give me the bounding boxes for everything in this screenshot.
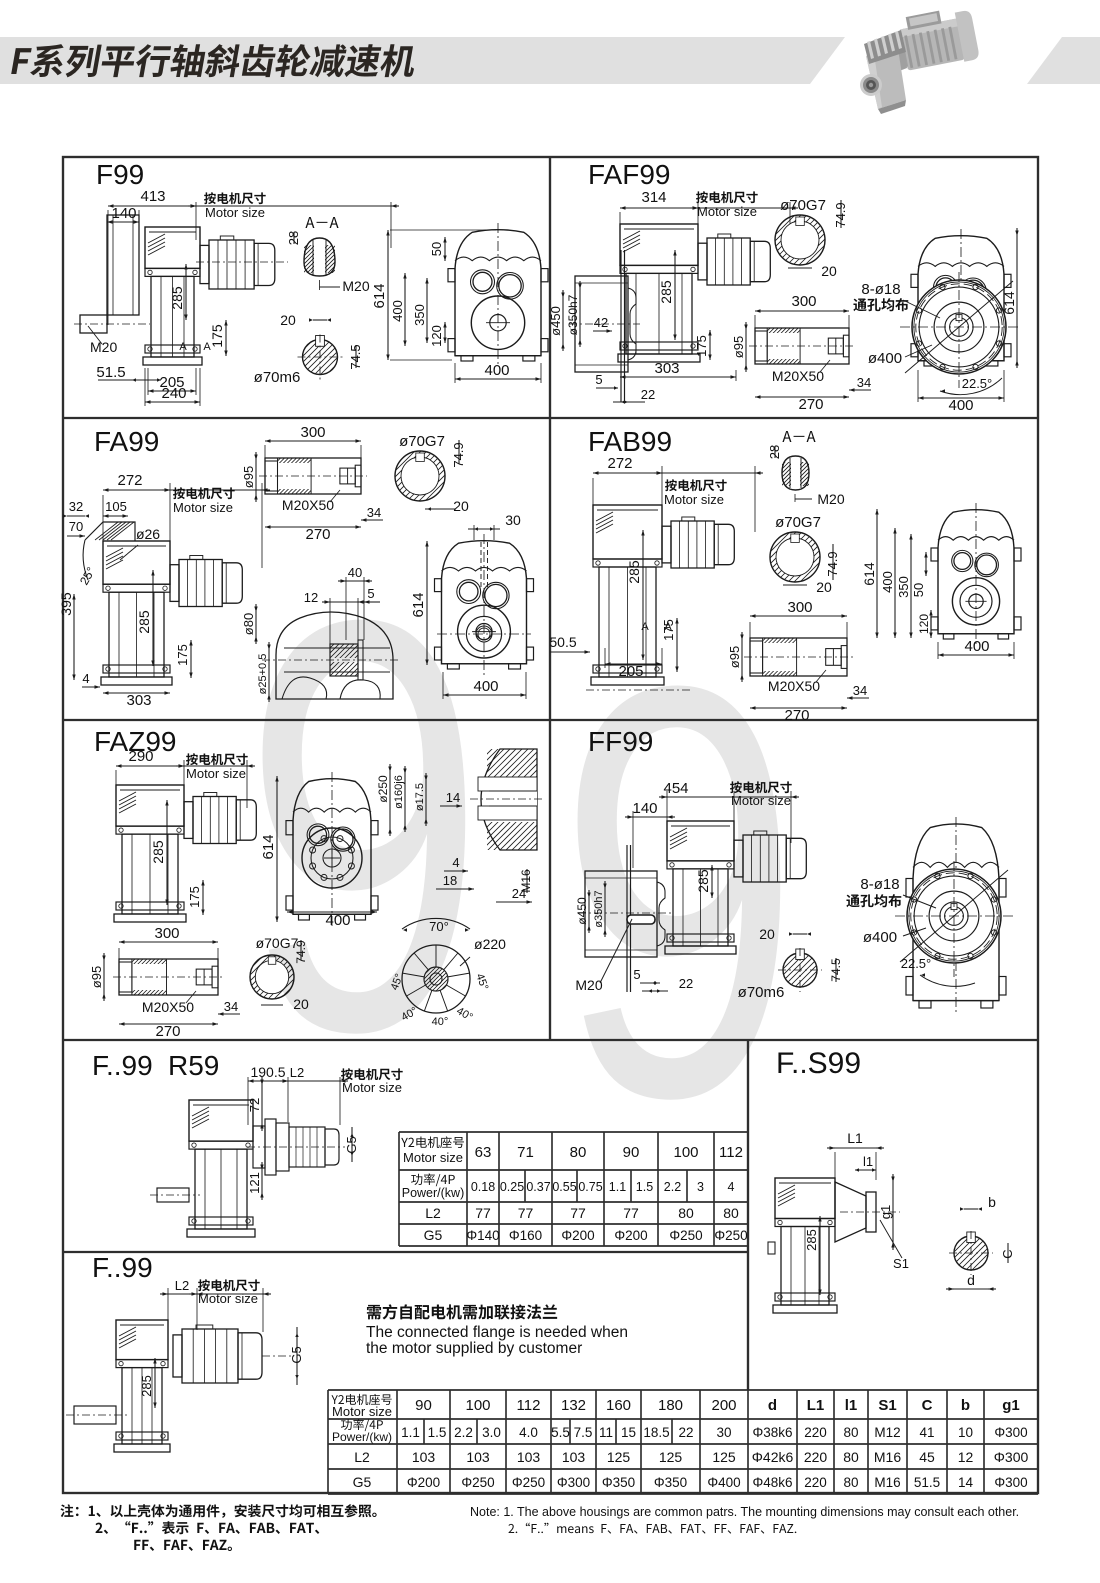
svg-text:Φ42k6: Φ42k6 xyxy=(752,1449,794,1465)
svg-text:41: 41 xyxy=(919,1425,934,1440)
svg-text:4: 4 xyxy=(82,671,89,686)
svg-text:20: 20 xyxy=(280,312,296,328)
svg-text:22.5°: 22.5° xyxy=(962,376,993,391)
svg-text:103: 103 xyxy=(412,1449,436,1465)
svg-text:400: 400 xyxy=(473,678,498,695)
svg-text:34: 34 xyxy=(857,375,871,390)
svg-text:L1: L1 xyxy=(807,1397,825,1414)
svg-text:28: 28 xyxy=(286,231,301,245)
svg-text:20: 20 xyxy=(759,926,775,942)
svg-text:4.0: 4.0 xyxy=(519,1425,538,1440)
svg-text:272: 272 xyxy=(607,455,632,472)
svg-text:80: 80 xyxy=(843,1449,859,1465)
svg-text:Motor size: Motor size xyxy=(697,204,757,219)
svg-text:The connected flange is needed: The connected flange is needed when xyxy=(366,1324,628,1341)
svg-text:4: 4 xyxy=(728,1180,735,1194)
svg-text:240: 240 xyxy=(161,385,186,402)
svg-text:270: 270 xyxy=(784,707,809,724)
svg-text:5: 5 xyxy=(633,967,640,982)
svg-text:140: 140 xyxy=(111,205,136,222)
svg-text:1.5: 1.5 xyxy=(636,1180,653,1194)
svg-text:285: 285 xyxy=(658,280,674,304)
svg-text:A: A xyxy=(641,621,649,633)
svg-text:77: 77 xyxy=(518,1205,534,1221)
svg-text:1.5: 1.5 xyxy=(428,1425,447,1440)
svg-text:Φ250: Φ250 xyxy=(669,1228,702,1243)
svg-text:S1: S1 xyxy=(893,1256,909,1271)
svg-text:M20: M20 xyxy=(342,278,369,294)
svg-text:125: 125 xyxy=(607,1449,631,1465)
svg-text:d: d xyxy=(768,1397,777,1414)
svg-text:ø250: ø250 xyxy=(376,775,390,803)
svg-text:20: 20 xyxy=(453,498,469,514)
svg-text:45: 45 xyxy=(919,1449,935,1465)
svg-text:L2: L2 xyxy=(425,1205,441,1221)
svg-text:0.37: 0.37 xyxy=(526,1180,550,1194)
svg-text:0.18: 0.18 xyxy=(471,1180,495,1194)
svg-text:ø220: ø220 xyxy=(474,936,506,952)
svg-text:Φ250: Φ250 xyxy=(512,1475,545,1490)
svg-text:g1: g1 xyxy=(1002,1397,1020,1414)
svg-text:220: 220 xyxy=(804,1425,827,1440)
svg-text:140: 140 xyxy=(632,800,657,817)
svg-text:Motor size: Motor size xyxy=(205,205,265,220)
svg-text:190.5: 190.5 xyxy=(250,1064,285,1080)
svg-text:A: A xyxy=(664,621,672,633)
svg-text:FA99: FA99 xyxy=(94,426,159,457)
svg-text:M20X50: M20X50 xyxy=(282,497,334,513)
svg-text:Φ200: Φ200 xyxy=(407,1475,440,1490)
svg-text:2.2: 2.2 xyxy=(454,1425,473,1440)
svg-text:11: 11 xyxy=(599,1425,613,1440)
svg-text:0.55: 0.55 xyxy=(552,1180,576,1194)
svg-text:8-ø18: 8-ø18 xyxy=(861,281,900,298)
svg-text:42: 42 xyxy=(594,315,608,330)
svg-text:74.9: 74.9 xyxy=(825,551,840,576)
svg-text:74.9: 74.9 xyxy=(294,940,308,964)
svg-text:14: 14 xyxy=(446,790,460,805)
svg-text:ø400: ø400 xyxy=(863,929,897,946)
svg-text:30: 30 xyxy=(716,1425,731,1440)
svg-text:ø450: ø450 xyxy=(575,897,589,925)
svg-text:285: 285 xyxy=(150,840,166,864)
svg-text:285: 285 xyxy=(804,1229,819,1251)
svg-text:50: 50 xyxy=(911,583,926,597)
svg-text:74.9: 74.9 xyxy=(833,202,848,227)
svg-text:12: 12 xyxy=(958,1449,974,1465)
svg-text:270: 270 xyxy=(305,526,330,543)
svg-text:Motor size: Motor size xyxy=(173,500,233,515)
svg-text:30: 30 xyxy=(505,512,521,528)
svg-text:74.5: 74.5 xyxy=(829,958,843,982)
svg-text:103: 103 xyxy=(517,1449,541,1465)
svg-text:175: 175 xyxy=(694,335,709,357)
svg-text:175: 175 xyxy=(187,886,202,908)
svg-text:Φ300: Φ300 xyxy=(994,1449,1029,1465)
svg-text:121: 121 xyxy=(247,1172,262,1194)
svg-text:400: 400 xyxy=(880,571,895,593)
svg-text:614: 614 xyxy=(260,834,277,859)
svg-text:M16: M16 xyxy=(874,1449,901,1465)
svg-text:Φ200: Φ200 xyxy=(561,1228,594,1243)
svg-text:M20: M20 xyxy=(817,491,844,507)
svg-text:15: 15 xyxy=(621,1425,636,1440)
svg-text:300: 300 xyxy=(787,599,812,616)
svg-text:270: 270 xyxy=(798,396,823,413)
svg-text:Φ250: Φ250 xyxy=(714,1228,747,1243)
svg-text:285: 285 xyxy=(169,286,185,310)
svg-text:Φ350: Φ350 xyxy=(602,1475,635,1490)
svg-text:L1: L1 xyxy=(847,1130,863,1146)
svg-text:175: 175 xyxy=(175,644,190,666)
svg-text:10: 10 xyxy=(958,1425,973,1440)
svg-text:22: 22 xyxy=(679,976,693,991)
svg-text:Φ48k6: Φ48k6 xyxy=(752,1475,792,1490)
svg-text:24: 24 xyxy=(512,886,526,901)
svg-text:300: 300 xyxy=(791,293,816,310)
svg-text:ø95: ø95 xyxy=(241,466,256,488)
svg-text:ø26: ø26 xyxy=(136,526,160,542)
svg-text:M16: M16 xyxy=(874,1475,900,1490)
svg-text:b: b xyxy=(961,1397,970,1414)
svg-text:22: 22 xyxy=(678,1425,693,1440)
svg-text:A: A xyxy=(179,341,187,353)
svg-text:103: 103 xyxy=(466,1449,490,1465)
svg-text:the motor supplied by customer: the motor supplied by customer xyxy=(366,1340,582,1357)
svg-text:100: 100 xyxy=(465,1397,490,1414)
svg-text:Φ38k6: Φ38k6 xyxy=(752,1425,792,1440)
svg-text:2.2: 2.2 xyxy=(664,1180,681,1194)
svg-text:180: 180 xyxy=(658,1397,683,1414)
svg-text:L2: L2 xyxy=(175,1278,189,1293)
svg-text:175: 175 xyxy=(209,324,225,348)
svg-text:ø400: ø400 xyxy=(868,350,902,367)
svg-text:4: 4 xyxy=(452,855,459,870)
svg-text:395: 395 xyxy=(58,592,74,616)
svg-text:d: d xyxy=(967,1272,975,1288)
svg-text:285: 285 xyxy=(136,610,152,634)
svg-text:Φ160: Φ160 xyxy=(509,1228,542,1243)
svg-text:80: 80 xyxy=(843,1425,858,1440)
svg-text:Φ250: Φ250 xyxy=(461,1475,494,1490)
svg-text:220: 220 xyxy=(804,1449,828,1465)
svg-text:300: 300 xyxy=(300,424,325,441)
svg-text:105: 105 xyxy=(105,499,127,514)
svg-text:303: 303 xyxy=(126,692,151,709)
svg-text:G5: G5 xyxy=(353,1474,372,1490)
svg-text:70°: 70° xyxy=(429,919,449,934)
svg-text:205: 205 xyxy=(618,663,643,680)
svg-text:Φ300: Φ300 xyxy=(994,1475,1027,1490)
svg-text:32: 32 xyxy=(69,499,83,514)
svg-text:112: 112 xyxy=(719,1144,743,1161)
svg-text:FAF99: FAF99 xyxy=(588,159,670,190)
svg-text:5.5: 5.5 xyxy=(551,1425,570,1440)
svg-text:Motor size: Motor size xyxy=(731,793,791,808)
svg-text:g1: g1 xyxy=(878,1205,893,1219)
svg-text:614: 614 xyxy=(410,592,427,617)
svg-text:22: 22 xyxy=(641,387,655,402)
svg-text:R59: R59 xyxy=(168,1050,219,1081)
svg-text:80: 80 xyxy=(843,1475,858,1490)
svg-text:614: 614 xyxy=(861,562,877,586)
svg-text:70: 70 xyxy=(69,519,83,534)
svg-text:Motor size: Motor size xyxy=(186,766,246,781)
svg-text:M20: M20 xyxy=(575,977,602,993)
svg-text:71: 71 xyxy=(517,1144,534,1161)
svg-text:ø95: ø95 xyxy=(731,336,746,358)
svg-text:614: 614 xyxy=(1001,291,1017,315)
svg-text:ø70G7: ø70G7 xyxy=(780,197,826,214)
svg-text:M20X50: M20X50 xyxy=(142,999,194,1015)
svg-text:400: 400 xyxy=(484,362,509,379)
svg-text:125: 125 xyxy=(712,1449,736,1465)
svg-text:50.5: 50.5 xyxy=(549,634,576,650)
svg-text:80: 80 xyxy=(570,1144,587,1161)
svg-text:400: 400 xyxy=(964,638,989,655)
svg-text:l1: l1 xyxy=(863,1154,873,1169)
svg-text:132: 132 xyxy=(561,1397,586,1414)
svg-text:40°: 40° xyxy=(432,1016,449,1028)
svg-text:l1: l1 xyxy=(845,1397,858,1414)
svg-text:285: 285 xyxy=(139,1375,154,1397)
svg-text:Motor size: Motor size xyxy=(664,492,724,507)
svg-text:ø80: ø80 xyxy=(241,613,256,635)
svg-text:ø70m6: ø70m6 xyxy=(738,984,785,1001)
svg-text:100: 100 xyxy=(673,1144,698,1161)
svg-text:272: 272 xyxy=(117,472,142,489)
svg-text:Power/(kw): Power/(kw) xyxy=(332,1430,392,1444)
svg-text:3.0: 3.0 xyxy=(482,1425,501,1440)
svg-text:L2: L2 xyxy=(290,1065,304,1080)
svg-text:90: 90 xyxy=(415,1397,432,1414)
svg-text:M12: M12 xyxy=(874,1425,900,1440)
svg-text:614: 614 xyxy=(371,283,388,308)
svg-text:72: 72 xyxy=(247,1098,262,1112)
svg-text:M20: M20 xyxy=(90,339,117,355)
svg-text:Note: 1. The above housings a: Note: 1. The above housings are common p… xyxy=(470,1505,1019,1519)
svg-text:3: 3 xyxy=(697,1180,704,1194)
svg-text:120: 120 xyxy=(917,614,931,634)
svg-text:Φ300: Φ300 xyxy=(557,1475,590,1490)
svg-text:63: 63 xyxy=(475,1144,492,1161)
svg-text:ø95: ø95 xyxy=(89,966,104,988)
svg-text:M20X50: M20X50 xyxy=(772,368,824,384)
svg-text:77: 77 xyxy=(623,1205,639,1221)
svg-text:270: 270 xyxy=(155,1023,180,1040)
svg-text:ø70m6: ø70m6 xyxy=(254,369,301,386)
svg-text:454: 454 xyxy=(663,780,688,797)
svg-text:350: 350 xyxy=(412,304,427,326)
svg-text:ø160j6: ø160j6 xyxy=(393,775,405,809)
svg-text:F99: F99 xyxy=(96,159,144,190)
svg-text:34: 34 xyxy=(224,999,238,1014)
svg-text:20: 20 xyxy=(293,996,309,1012)
svg-text:400: 400 xyxy=(390,300,405,322)
svg-text:L2: L2 xyxy=(354,1449,370,1465)
svg-text:77: 77 xyxy=(475,1205,491,1221)
svg-text:20: 20 xyxy=(816,579,832,595)
svg-text:M20X50: M20X50 xyxy=(768,678,820,694)
svg-text:303: 303 xyxy=(654,360,679,377)
svg-text:160: 160 xyxy=(606,1397,631,1414)
svg-text:120: 120 xyxy=(429,325,444,347)
svg-text:34: 34 xyxy=(367,505,381,520)
svg-text:314: 314 xyxy=(641,189,666,206)
svg-text:220: 220 xyxy=(804,1475,827,1490)
svg-text:ø70G7: ø70G7 xyxy=(256,935,299,951)
svg-text:14: 14 xyxy=(958,1475,974,1490)
svg-text:G5: G5 xyxy=(344,1136,359,1153)
svg-text:ø25+0.5: ø25+0.5 xyxy=(257,654,269,695)
svg-text:80: 80 xyxy=(723,1205,739,1221)
svg-text:Φ140: Φ140 xyxy=(466,1228,499,1243)
svg-text:125: 125 xyxy=(659,1449,683,1465)
svg-text:0.75: 0.75 xyxy=(578,1180,602,1194)
svg-text:300: 300 xyxy=(154,925,179,942)
svg-text:Motor size: Motor size xyxy=(198,1291,258,1306)
svg-text:12: 12 xyxy=(304,590,318,605)
svg-text:ø350h7: ø350h7 xyxy=(593,890,605,927)
svg-text:F..99: F..99 xyxy=(92,1252,153,1283)
svg-text:5: 5 xyxy=(367,586,374,601)
svg-text:400: 400 xyxy=(325,912,350,929)
svg-text:77: 77 xyxy=(570,1205,586,1221)
svg-text:b: b xyxy=(988,1194,996,1210)
svg-text:285: 285 xyxy=(626,560,642,584)
svg-text:50: 50 xyxy=(429,242,444,256)
svg-text:1.1: 1.1 xyxy=(401,1425,420,1440)
svg-text:Φ300: Φ300 xyxy=(994,1425,1027,1440)
svg-text:Φ200: Φ200 xyxy=(614,1228,647,1243)
svg-text:G5: G5 xyxy=(424,1227,443,1243)
svg-text:Motor size: Motor size xyxy=(403,1150,463,1165)
svg-text:Motor size: Motor size xyxy=(332,1404,392,1419)
svg-text:400: 400 xyxy=(948,397,973,414)
svg-text:290: 290 xyxy=(128,748,153,765)
svg-text:103: 103 xyxy=(562,1449,586,1465)
svg-text:C: C xyxy=(1000,1249,1015,1258)
svg-text:ø350h7: ø350h7 xyxy=(566,294,580,335)
svg-text:G5: G5 xyxy=(289,1346,304,1363)
svg-text:90: 90 xyxy=(623,1144,640,1161)
svg-text:FAB99: FAB99 xyxy=(588,426,672,457)
svg-text:S1: S1 xyxy=(878,1397,896,1414)
svg-text:34: 34 xyxy=(853,683,867,698)
svg-text:7.5: 7.5 xyxy=(574,1425,593,1440)
svg-text:40: 40 xyxy=(348,565,362,580)
svg-text:ø450: ø450 xyxy=(548,306,563,336)
svg-text:51.5: 51.5 xyxy=(96,364,125,381)
svg-text:22.5°: 22.5° xyxy=(901,956,932,971)
svg-text:200: 200 xyxy=(711,1397,736,1414)
svg-text:Power/(kw): Power/(kw) xyxy=(402,1186,465,1200)
svg-text:5: 5 xyxy=(595,372,602,387)
svg-text:350: 350 xyxy=(896,576,911,598)
svg-text:F..99: F..99 xyxy=(92,1050,153,1081)
svg-text:F..S99: F..S99 xyxy=(776,1047,861,1080)
svg-text:ø70G7: ø70G7 xyxy=(775,514,821,531)
svg-text:25°: 25° xyxy=(77,564,98,587)
svg-text:18.5: 18.5 xyxy=(643,1425,669,1440)
svg-text:C: C xyxy=(922,1397,933,1414)
svg-text:ø95: ø95 xyxy=(727,646,742,668)
svg-text:285: 285 xyxy=(695,869,711,893)
svg-text:74.9: 74.9 xyxy=(451,442,466,467)
svg-text:FF99: FF99 xyxy=(588,726,653,757)
svg-text:18: 18 xyxy=(443,873,457,888)
svg-text:Motor size: Motor size xyxy=(342,1080,402,1095)
svg-text:8-ø18: 8-ø18 xyxy=(860,876,899,893)
svg-text:20: 20 xyxy=(821,263,837,279)
svg-text:ø70G7: ø70G7 xyxy=(399,433,445,450)
svg-text:51.5: 51.5 xyxy=(914,1475,940,1490)
svg-text:112: 112 xyxy=(517,1397,541,1414)
svg-text:413: 413 xyxy=(140,188,165,205)
svg-text:1.1: 1.1 xyxy=(609,1180,626,1194)
svg-text:74.5: 74.5 xyxy=(348,344,363,369)
svg-text:0.25: 0.25 xyxy=(500,1180,524,1194)
svg-text:ø17.5: ø17.5 xyxy=(414,783,426,811)
svg-text:80: 80 xyxy=(678,1205,694,1221)
svg-text:Φ350: Φ350 xyxy=(654,1475,687,1490)
svg-text:A: A xyxy=(203,341,211,353)
svg-text:Φ400: Φ400 xyxy=(707,1475,740,1490)
svg-text:28: 28 xyxy=(767,445,782,459)
